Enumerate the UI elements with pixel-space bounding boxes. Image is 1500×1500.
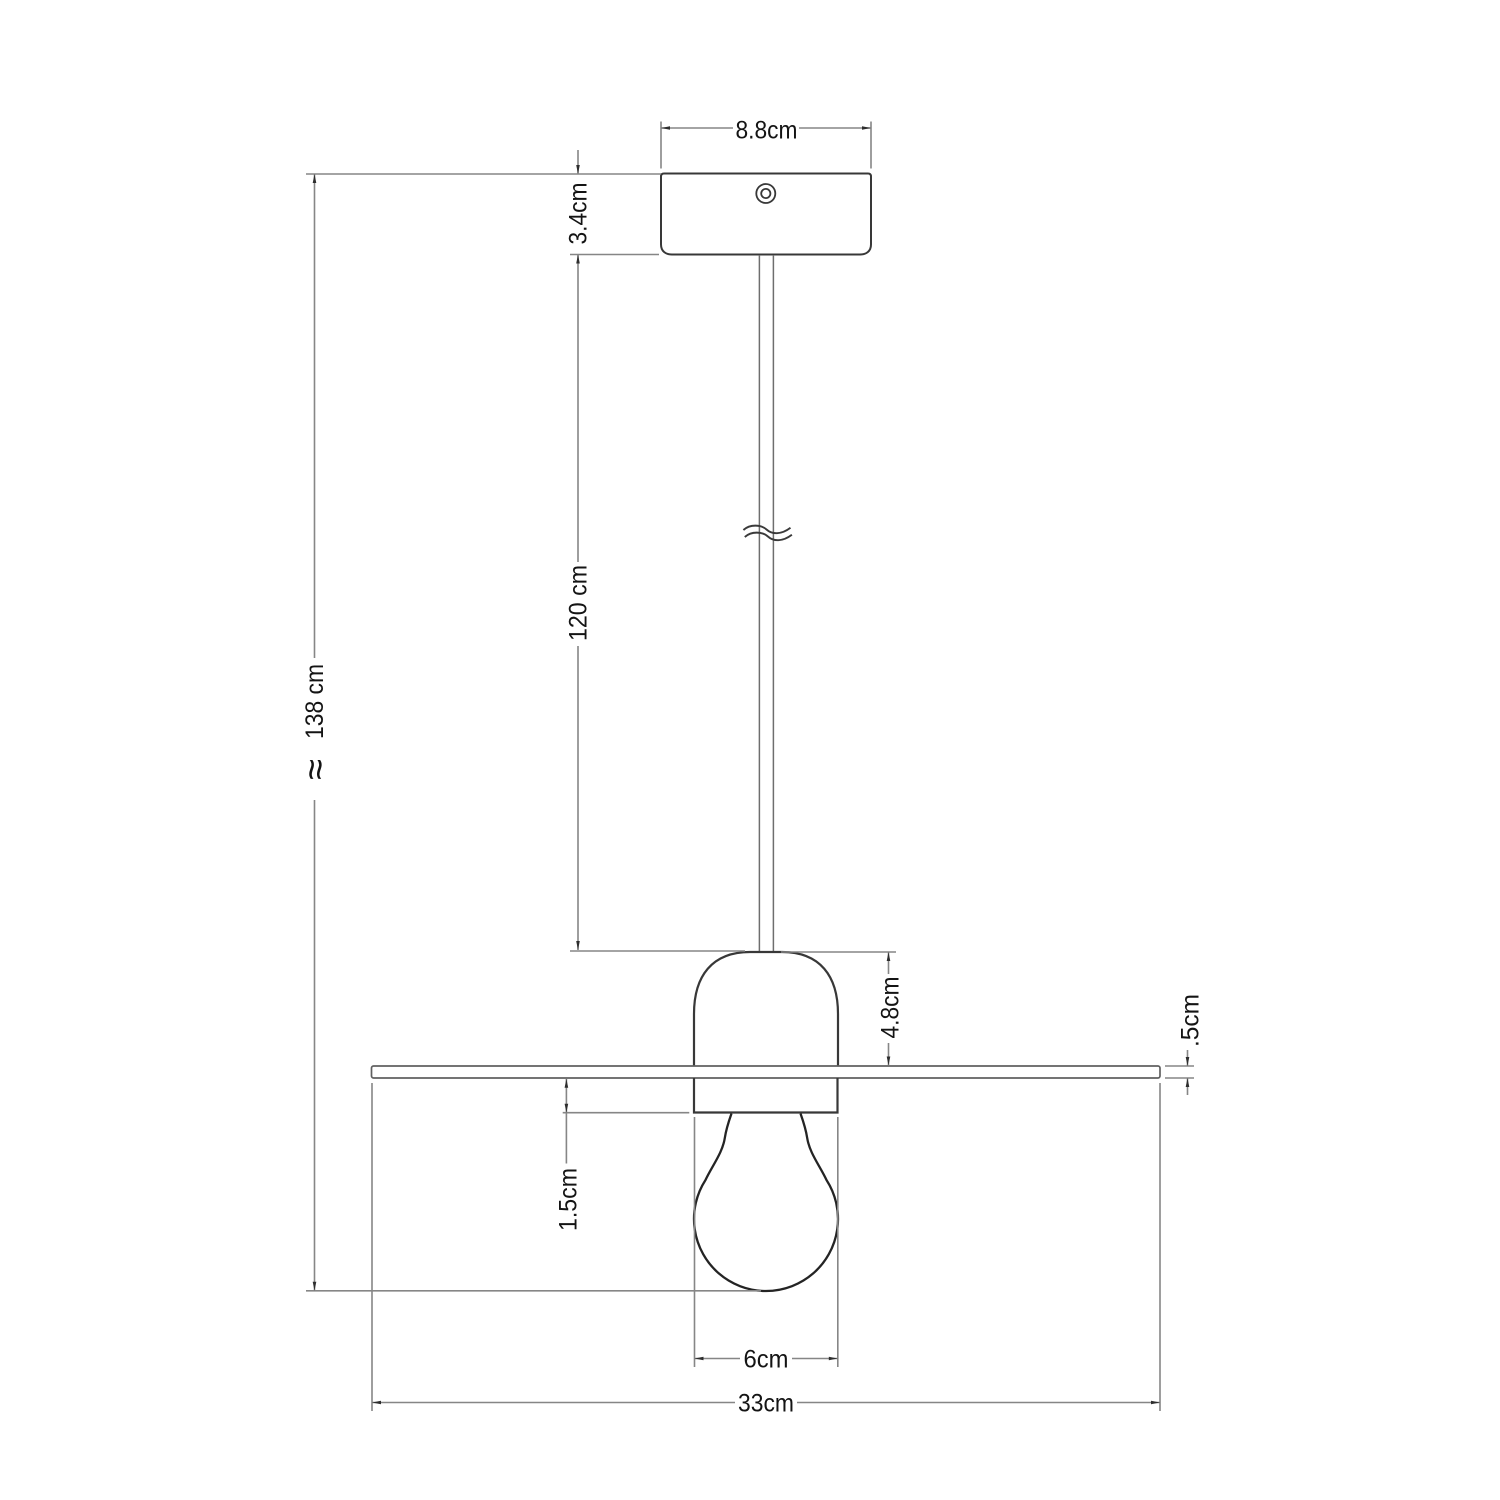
svg-text:3.4cm: 3.4cm	[565, 183, 593, 245]
svg-text:33cm: 33cm	[738, 1390, 794, 1418]
svg-text:≈: ≈	[295, 759, 337, 780]
svg-text:8.8cm: 8.8cm	[736, 117, 798, 145]
svg-text:6cm: 6cm	[744, 1346, 789, 1374]
svg-text:1.5cm: 1.5cm	[555, 1168, 583, 1231]
svg-text:4.8cm: 4.8cm	[877, 977, 905, 1039]
svg-text:120 cm: 120 cm	[565, 565, 593, 641]
svg-text:138 cm: 138 cm	[301, 664, 329, 739]
svg-text:.5cm: .5cm	[1177, 994, 1205, 1047]
